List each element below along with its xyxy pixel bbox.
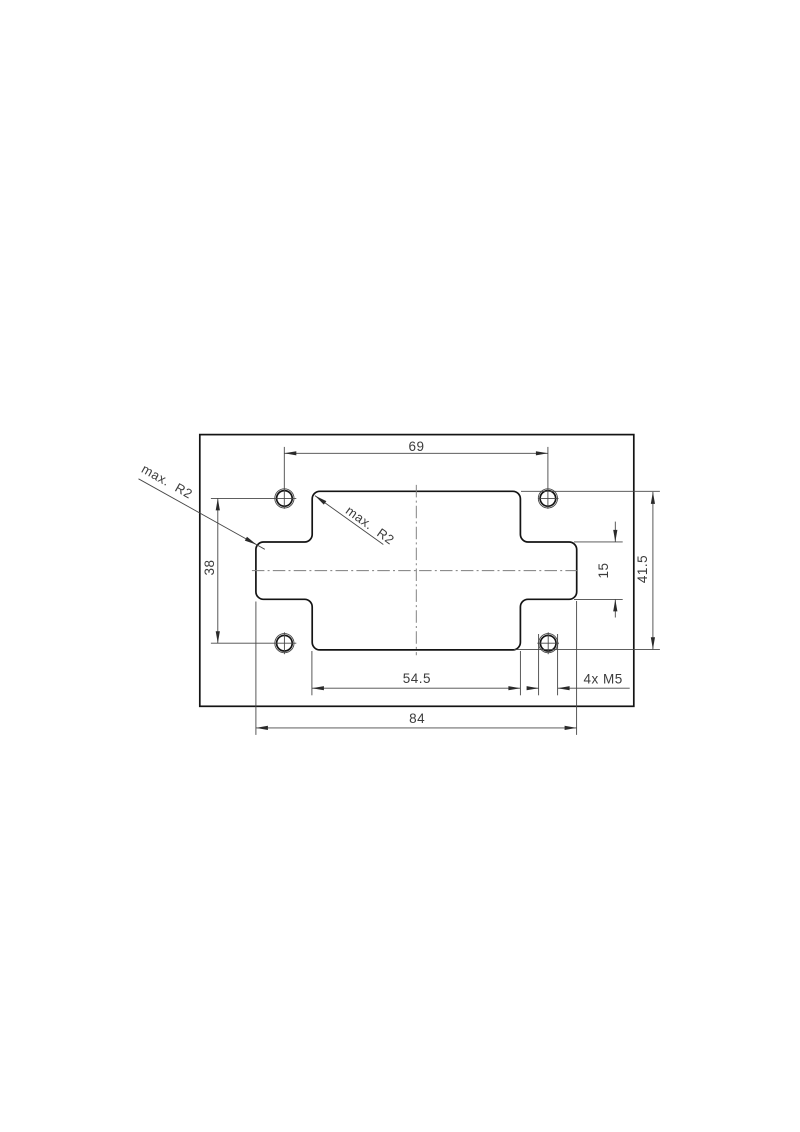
svg-text:max. R2: max. R2 (343, 503, 397, 548)
svg-text:4x M5: 4x M5 (584, 671, 623, 686)
svg-text:38: 38 (202, 559, 217, 575)
svg-text:84: 84 (409, 711, 425, 726)
svg-text:69: 69 (408, 439, 424, 454)
svg-text:41.5: 41.5 (635, 555, 650, 583)
svg-text:max. R2: max. R2 (139, 461, 195, 501)
svg-text:15: 15 (596, 562, 611, 578)
svg-text:54.5: 54.5 (403, 671, 431, 686)
